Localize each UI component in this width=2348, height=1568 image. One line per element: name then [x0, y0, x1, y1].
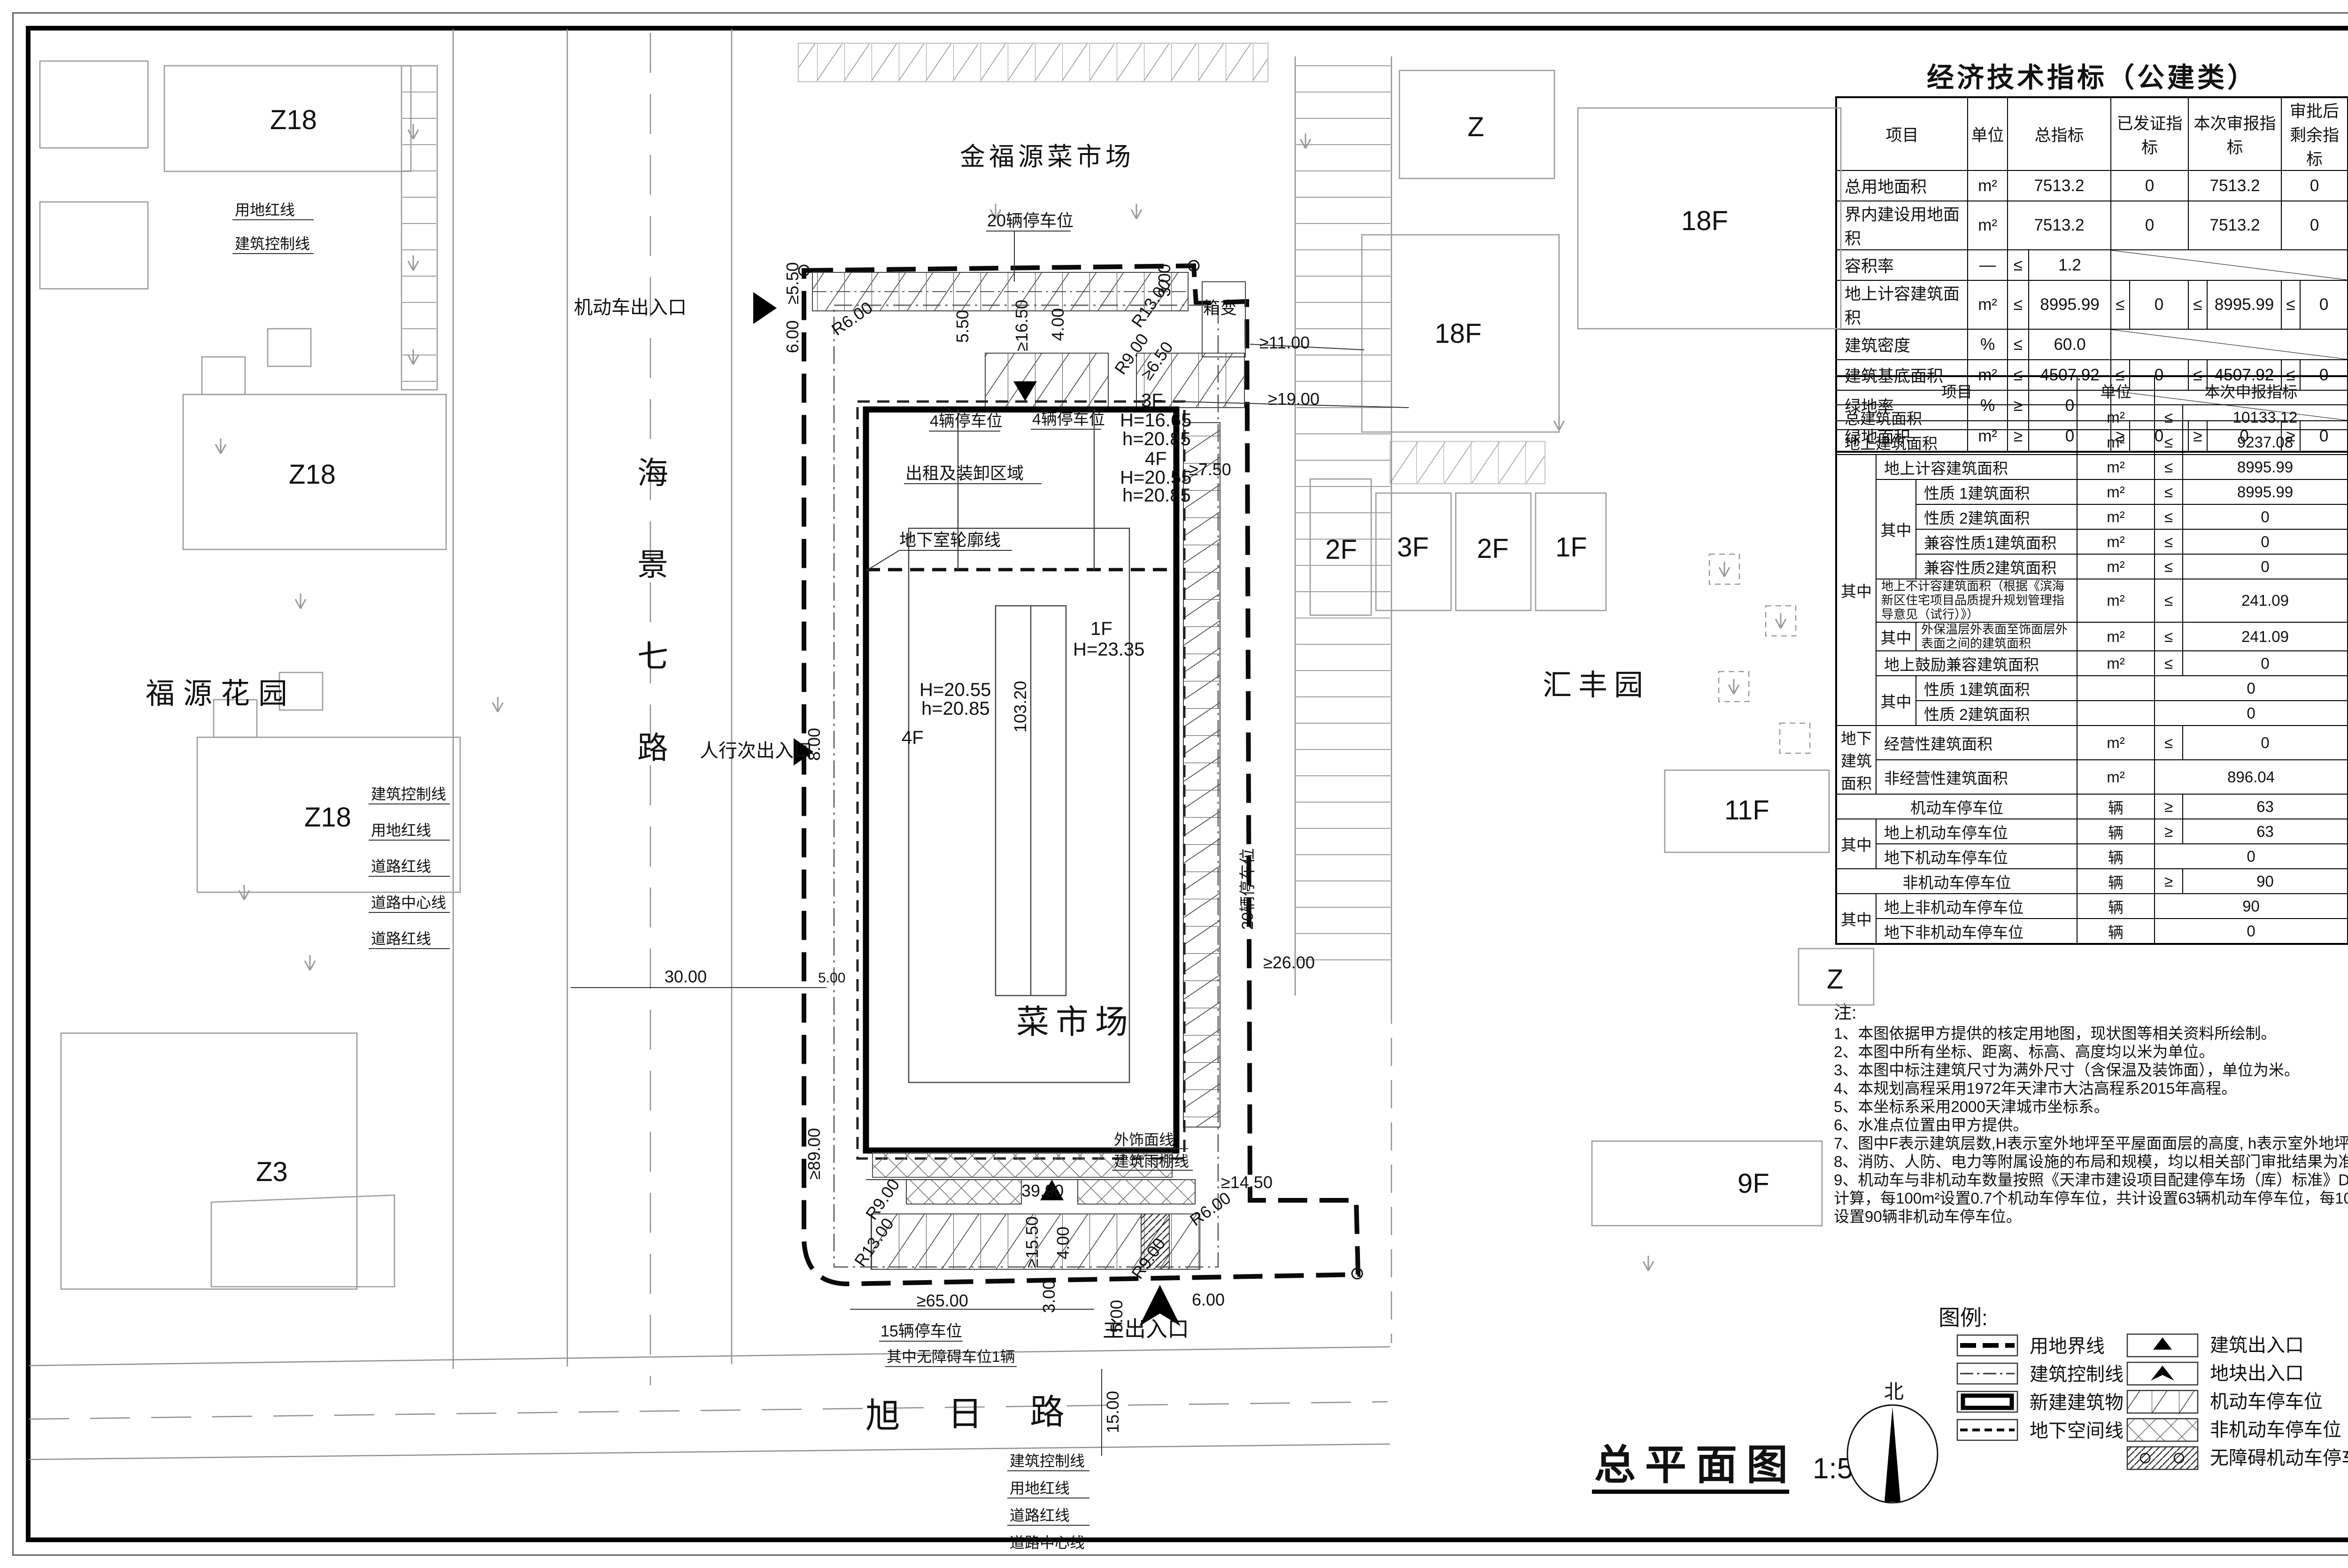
svg-text:2F: 2F	[1477, 533, 1509, 564]
svg-text:Z18: Z18	[289, 459, 336, 490]
svg-text:15.00: 15.00	[1103, 1391, 1122, 1433]
svg-text:6.00: 6.00	[1192, 1290, 1225, 1309]
svg-text:1F: 1F	[1090, 618, 1112, 639]
svg-text:6.00: 6.00	[783, 320, 802, 353]
svg-text:4F: 4F	[1145, 448, 1167, 469]
svg-text:5.50: 5.50	[953, 310, 972, 343]
svg-text:无障碍机动车停车位: 无障碍机动车停车位	[2210, 1448, 2348, 1468]
north-compass: 北	[1847, 1381, 1938, 1503]
svg-text:4F: 4F	[902, 727, 924, 748]
svg-text:H=20.55: H=20.55	[919, 680, 991, 700]
svg-text:5.00: 5.00	[818, 970, 845, 986]
svg-text:5.00: 5.00	[1107, 1300, 1126, 1333]
svg-text:Z: Z	[1467, 112, 1484, 142]
svg-text:箱变: 箱变	[1203, 298, 1237, 317]
svg-text:建筑出入口: 建筑出入口	[2210, 1335, 2304, 1356]
svg-text:用地红线: 用地红线	[235, 201, 295, 218]
sheet: 菜市场 金福源菜市场 海 景 七 路 旭 日 路 福源花园 汇丰园 Z18 Z1…	[0, 0, 2348, 1568]
svg-text:用地界线: 用地界线	[2030, 1336, 2105, 1357]
svg-text:道路中心线: 道路中心线	[371, 894, 446, 911]
svg-text:≥16.50: ≥16.50	[1012, 300, 1031, 351]
svg-text:外饰面线: 外饰面线	[1114, 1131, 1174, 1148]
svg-text:海: 海	[637, 456, 668, 490]
svg-text:9F: 9F	[1738, 1168, 1769, 1199]
vehicle-entrance-icon	[753, 292, 777, 324]
svg-text:地块出入口: 地块出入口	[2210, 1363, 2304, 1384]
svg-text:3F: 3F	[1397, 532, 1429, 563]
svg-text:≥19.00: ≥19.00	[1268, 389, 1320, 409]
svg-text:地下室轮廓线: 地下室轮廓线	[899, 530, 1001, 549]
svg-text:七: 七	[637, 639, 668, 673]
svg-text:18F: 18F	[1435, 318, 1482, 349]
svg-text:用地红线: 用地红线	[1010, 1480, 1070, 1497]
svg-text:建筑控制线: 建筑控制线	[371, 786, 446, 803]
svg-text:路: 路	[637, 730, 668, 765]
svg-text:机动车出入口: 机动车出入口	[574, 297, 687, 318]
svg-text:Z18: Z18	[270, 105, 317, 135]
svg-text:汇丰园: 汇丰园	[1543, 669, 1650, 702]
svg-text:旭: 旭	[865, 1396, 900, 1435]
neighbor-market-label: 金福源菜市场	[960, 143, 1135, 171]
legend-title: 图例:	[1939, 1305, 1988, 1330]
svg-text:18F: 18F	[1681, 206, 1728, 236]
svg-text:h=20.85: h=20.85	[1122, 485, 1191, 506]
drawing-title-group: 总平面图 1:500	[1592, 1442, 1885, 1494]
svg-text:15辆停车位: 15辆停车位	[880, 1322, 962, 1340]
svg-text:2F: 2F	[1325, 534, 1357, 565]
svg-text:道路红线: 道路红线	[1010, 1507, 1070, 1524]
svg-text:≥11.00: ≥11.00	[1259, 333, 1310, 352]
svg-text:≥26.00: ≥26.00	[1263, 953, 1315, 972]
market-hall-label: 菜市场	[1016, 1004, 1135, 1040]
svg-text:4.00: 4.00	[1048, 308, 1067, 341]
svg-text:4辆停车位: 4辆停车位	[930, 412, 1003, 430]
svg-text:≥15.50: ≥15.50	[1022, 1216, 1042, 1268]
svg-text:景: 景	[637, 547, 668, 582]
svg-text:≥14.50: ≥14.50	[1221, 1173, 1273, 1192]
svg-text:路: 路	[1030, 1392, 1065, 1431]
drawing-sheet-root: { "table1": { "title": "经济技术指标（公建类）", "h…	[0, 0, 2348, 1568]
svg-text:H=23.35: H=23.35	[1073, 639, 1144, 660]
svg-text:日: 日	[948, 1394, 982, 1433]
site-plan-canvas: 菜市场 金福源菜市场 海 景 七 路 旭 日 路 福源花园 汇丰园 Z18 Z1…	[0, 0, 2348, 1568]
svg-text:3.00: 3.00	[1039, 1280, 1058, 1313]
svg-text:h=20.85: h=20.85	[1122, 429, 1191, 449]
svg-text:建筑控制线: 建筑控制线	[235, 235, 310, 252]
svg-text:30.00: 30.00	[664, 967, 707, 986]
svg-text:h=20.85: h=20.85	[921, 698, 990, 719]
svg-text:机动车停车位: 机动车停车位	[2210, 1391, 2323, 1412]
svg-text:≥65.00: ≥65.00	[917, 1291, 968, 1310]
svg-text:1F: 1F	[1555, 532, 1587, 563]
svg-text:3.00: 3.00	[1155, 264, 1174, 297]
north-label: 北	[1884, 1381, 1904, 1403]
svg-text:20辆停车位: 20辆停车位	[1239, 848, 1257, 930]
svg-text:福源花园: 福源花园	[146, 678, 296, 710]
svg-text:≥5.50: ≥5.50	[783, 262, 802, 304]
svg-text:建筑控制线: 建筑控制线	[1010, 1452, 1085, 1469]
svg-text:地下空间线: 地下空间线	[2030, 1421, 2124, 1441]
svg-text:≥7.50: ≥7.50	[1189, 460, 1231, 479]
svg-text:新建建筑物: 新建建筑物	[2030, 1392, 2124, 1413]
svg-text:建筑控制线: 建筑控制线	[2030, 1364, 2124, 1385]
svg-text:其中无障碍车位1辆: 其中无障碍车位1辆	[887, 1348, 1015, 1365]
svg-text:建筑雨棚线: 建筑雨棚线	[1114, 1153, 1189, 1170]
svg-text:39.90: 39.90	[1021, 1181, 1064, 1200]
legend: 图例: 用地界线 建筑控制线 新建建筑物 地下空间线 建筑出入口 地块出入	[1939, 1305, 2348, 1469]
svg-text:非机动车停车位: 非机动车停车位	[2210, 1420, 2341, 1440]
svg-text:8.00: 8.00	[804, 728, 824, 761]
svg-text:H=16.65: H=16.65	[1120, 410, 1191, 431]
svg-text:用地红线: 用地红线	[371, 822, 431, 839]
svg-text:Z18: Z18	[304, 802, 351, 833]
svg-text:4辆停车位: 4辆停车位	[1032, 410, 1105, 428]
svg-text:4.00: 4.00	[1053, 1227, 1073, 1259]
svg-text:11F: 11F	[1724, 795, 1769, 826]
svg-text:道路中心线: 道路中心线	[1010, 1534, 1085, 1551]
svg-text:道路红线: 道路红线	[371, 930, 431, 947]
drawing-title: 总平面图	[1594, 1442, 1797, 1488]
svg-text:103.20: 103.20	[1011, 681, 1030, 733]
svg-text:Z3: Z3	[256, 1157, 288, 1187]
svg-text:出租及装卸区域: 出租及装卸区域	[905, 463, 1024, 483]
svg-text:3F: 3F	[1141, 390, 1163, 411]
svg-text:道路红线: 道路红线	[371, 858, 431, 875]
svg-text:≥89.00: ≥89.00	[804, 1128, 824, 1180]
svg-text:人行次出入口: 人行次出入口	[700, 741, 812, 761]
svg-text:20辆停车位: 20辆停车位	[987, 211, 1074, 230]
svg-text:Z: Z	[1827, 964, 1843, 995]
